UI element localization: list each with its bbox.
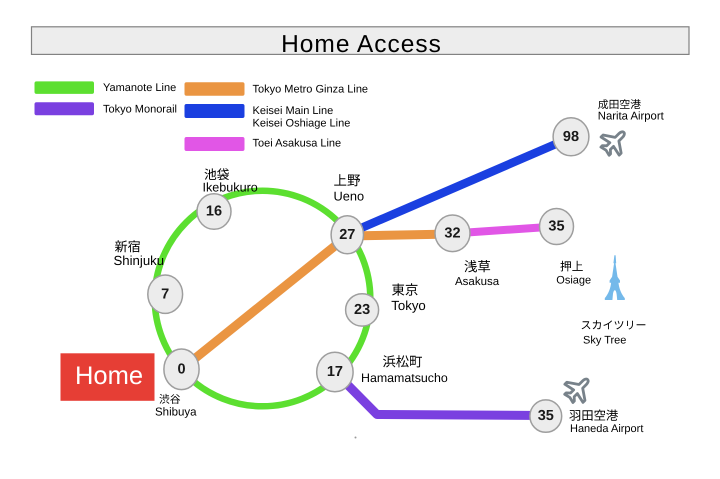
svg-text:Tokyo Metro Ginza Line: Tokyo Metro Ginza Line	[253, 84, 369, 96]
svg-text:Toei Asakusa Line: Toei Asakusa Line	[253, 138, 342, 150]
svg-text:Narita Airport: Narita Airport	[598, 111, 665, 123]
svg-text:Haneda Airport: Haneda Airport	[570, 423, 643, 435]
svg-text:17: 17	[327, 364, 343, 380]
svg-text:Sky Tree: Sky Tree	[583, 334, 626, 346]
svg-text:Shinjuku: Shinjuku	[114, 253, 165, 268]
svg-text:32: 32	[444, 225, 460, 241]
svg-text:Tokyo Monorail: Tokyo Monorail	[103, 104, 177, 116]
svg-text:Home Access: Home Access	[281, 31, 442, 58]
svg-text:16: 16	[206, 204, 222, 220]
svg-text:0: 0	[177, 361, 185, 377]
svg-text:35: 35	[548, 219, 564, 235]
svg-text:Ueno: Ueno	[334, 189, 365, 204]
svg-text:Home: Home	[75, 362, 143, 390]
svg-text:Shibuya: Shibuya	[155, 406, 197, 418]
svg-text:27: 27	[339, 227, 355, 243]
svg-text:35: 35	[538, 408, 554, 424]
svg-text:Hamamatsucho: Hamamatsucho	[361, 371, 448, 385]
svg-text:7: 7	[161, 286, 169, 302]
svg-text:Osiage: Osiage	[556, 274, 591, 286]
svg-text:Ikebukuro: Ikebukuro	[203, 181, 258, 195]
svg-text:Yamanote Line: Yamanote Line	[103, 82, 176, 94]
svg-text:Tokyo: Tokyo	[391, 298, 425, 313]
svg-text:Asakusa: Asakusa	[455, 276, 500, 288]
svg-text:98: 98	[563, 129, 579, 145]
svg-text:23: 23	[354, 302, 370, 318]
